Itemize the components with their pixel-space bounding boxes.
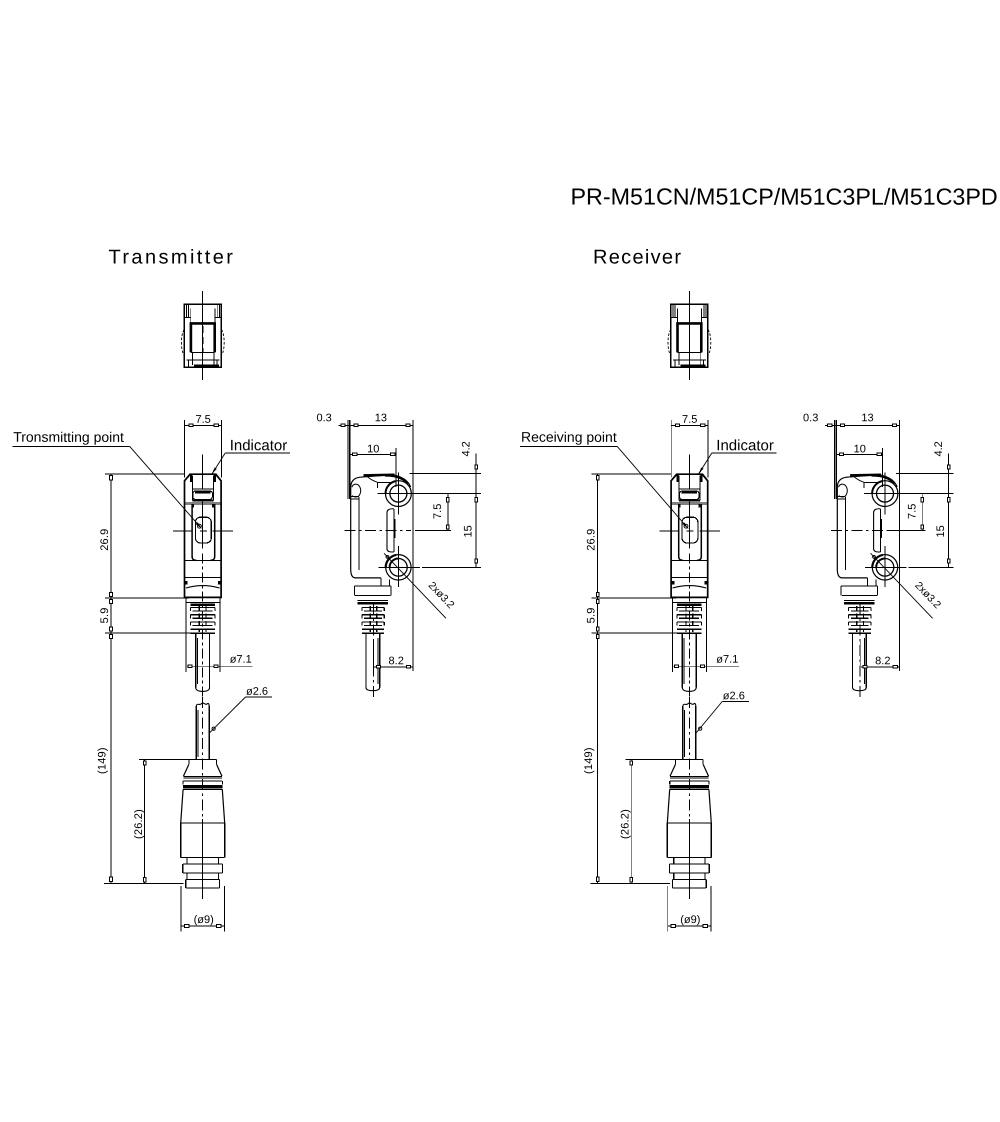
- svg-text:PR-M51CN/M51CP/M51C3PL/M51C3PD: PR-M51CN/M51CP/M51C3PL/M51C3PD: [570, 184, 997, 210]
- svg-text:8.2: 8.2: [389, 655, 404, 667]
- svg-text:5.9: 5.9: [99, 607, 111, 623]
- svg-text:Receiver: Receiver: [593, 247, 682, 269]
- svg-text:Indicator: Indicator: [230, 437, 288, 454]
- svg-text:26.9: 26.9: [99, 529, 111, 551]
- svg-text:Receiving point: Receiving point: [521, 429, 617, 445]
- svg-text:13: 13: [861, 412, 873, 424]
- svg-text:2xø3.2: 2xø3.2: [912, 580, 943, 612]
- svg-text:15: 15: [462, 525, 474, 537]
- svg-text:4.2: 4.2: [933, 441, 945, 456]
- svg-text:13: 13: [375, 412, 387, 424]
- svg-text:15: 15: [935, 525, 947, 537]
- svg-text:0.3: 0.3: [316, 412, 331, 424]
- svg-text:7.5: 7.5: [195, 414, 210, 426]
- svg-text:(26.2): (26.2): [619, 809, 631, 839]
- svg-text:8.2: 8.2: [875, 655, 890, 667]
- svg-text:7.5: 7.5: [682, 414, 697, 426]
- svg-text:7.5: 7.5: [432, 504, 444, 519]
- svg-text:ø2.6: ø2.6: [246, 686, 268, 698]
- svg-text:(26.2): (26.2): [133, 809, 145, 839]
- svg-text:7.5: 7.5: [907, 504, 919, 519]
- svg-text:0.3: 0.3: [803, 412, 818, 424]
- svg-text:Tronsmitting point: Tronsmitting point: [13, 429, 124, 445]
- svg-text:ø2.6: ø2.6: [723, 690, 745, 702]
- svg-text:(ø9): (ø9): [194, 914, 214, 926]
- svg-text:(ø9): (ø9): [680, 914, 700, 926]
- svg-text:ø7.1: ø7.1: [230, 654, 252, 666]
- svg-text:(149): (149): [97, 747, 109, 774]
- svg-text:26.9: 26.9: [586, 529, 598, 551]
- svg-text:4.2: 4.2: [461, 441, 473, 456]
- svg-text:Indicator: Indicator: [716, 437, 774, 454]
- svg-text:2xø3.2: 2xø3.2: [426, 580, 457, 612]
- svg-text:5.9: 5.9: [586, 607, 598, 623]
- svg-text:10: 10: [854, 443, 866, 455]
- svg-text:10: 10: [367, 443, 379, 455]
- svg-text:(149): (149): [583, 747, 595, 774]
- svg-text:ø7.1: ø7.1: [716, 654, 738, 666]
- svg-text:Transmitter: Transmitter: [108, 247, 235, 269]
